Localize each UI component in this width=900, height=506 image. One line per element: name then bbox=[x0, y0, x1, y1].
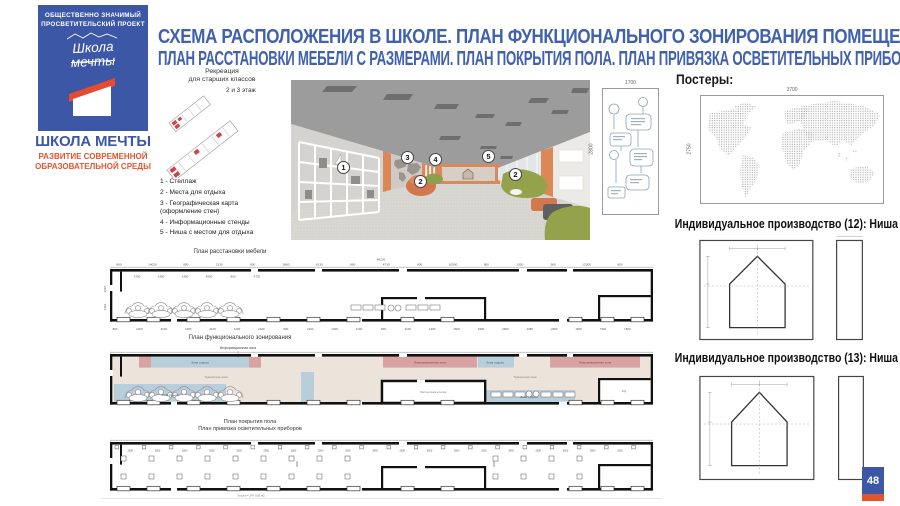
svg-text:2500: 2500 bbox=[345, 450, 351, 453]
svg-text:500: 500 bbox=[381, 327, 386, 331]
svg-text:1200: 1200 bbox=[234, 327, 241, 331]
brand-subtitle: РАЗВИТИЕ СОВРЕМЕННОЙ ОБРАЗОВАТЕЛЬНОЙ СРЕ… bbox=[28, 152, 158, 171]
svg-text:2500: 2500 bbox=[264, 450, 270, 453]
svg-text:7300: 7300 bbox=[600, 327, 607, 331]
svg-text:2050: 2050 bbox=[527, 327, 534, 331]
svg-text:2500: 2500 bbox=[209, 450, 215, 453]
svg-text:1500: 1500 bbox=[453, 327, 460, 331]
svg-text:2100: 2100 bbox=[307, 327, 314, 331]
svg-text:2100: 2100 bbox=[161, 327, 168, 331]
svg-text:Информационная зона: Информационная зона bbox=[220, 346, 256, 350]
svg-text:800: 800 bbox=[116, 262, 121, 266]
svg-text:2500: 2500 bbox=[236, 450, 242, 453]
svg-text:800: 800 bbox=[617, 262, 622, 266]
render-marker-2: 2 bbox=[414, 175, 427, 188]
svg-text:2100: 2100 bbox=[209, 327, 216, 331]
svg-text:2100: 2100 bbox=[405, 327, 412, 331]
plan-zoning: Информационная зонаЗона отдыхаИнформацио… bbox=[101, 342, 662, 422]
svg-text:1400: 1400 bbox=[158, 274, 165, 278]
brand-name: ШКОЛА МЕЧТЫ bbox=[28, 133, 158, 150]
render-marker-3: 3 bbox=[401, 151, 414, 164]
production13-heading: Индивидуальное производство (13): Ниша bbox=[648, 351, 898, 365]
logo-tagline: ОБЩЕСТВЕННО ЗНАЧИМЫЙ bbox=[38, 12, 148, 21]
svg-text:1000: 1000 bbox=[516, 262, 523, 266]
poster1-width-dim: 1700 bbox=[602, 80, 659, 86]
svg-text:12000: 12000 bbox=[582, 262, 591, 266]
svg-text:2500: 2500 bbox=[155, 450, 161, 453]
svg-text:800: 800 bbox=[350, 262, 355, 266]
svg-text:2500: 2500 bbox=[590, 450, 596, 453]
svg-text:Транзитная зона: Транзитная зона bbox=[513, 375, 537, 379]
svg-text:1200: 1200 bbox=[331, 327, 338, 331]
svg-text:1400: 1400 bbox=[182, 274, 189, 278]
svg-text:6130: 6130 bbox=[316, 262, 323, 266]
legend-item: 5 - Ниша с местом для отдыха bbox=[160, 229, 286, 237]
page-number-badge: 48 bbox=[862, 467, 884, 501]
svg-text:2600: 2600 bbox=[502, 327, 509, 331]
logo-block: ОБЩЕСТВЕННО ЗНАЧИМЫЙ ПРОСВЕТИТЕЛЬСКИЙ ПР… bbox=[38, 5, 148, 131]
school-house-icon bbox=[68, 74, 118, 118]
posters-heading: Постеры: bbox=[676, 72, 733, 87]
svg-text:4000: 4000 bbox=[206, 274, 213, 278]
svg-text:800: 800 bbox=[113, 327, 118, 331]
svg-text:2130: 2130 bbox=[216, 262, 223, 266]
plan-lighting: 2500250025002500250025002500250025002500… bbox=[101, 434, 662, 502]
page-title-line1: СХЕМА РАСПОЛОЖЕНИЯ В ШКОЛЕ. ПЛАН ФУНКЦИО… bbox=[158, 26, 789, 48]
svg-text:3700: 3700 bbox=[134, 274, 141, 278]
page-title-line2: ПЛАН РАССТАНОВКИ МЕБЕЛИ С РАЗМЕРАМИ. ПЛА… bbox=[158, 48, 648, 70]
svg-text:500: 500 bbox=[283, 327, 288, 331]
svg-text:900: 900 bbox=[551, 262, 556, 266]
world-map-poster bbox=[701, 96, 883, 203]
page-number: 48 bbox=[862, 467, 884, 494]
poster1-infographic bbox=[603, 89, 658, 214]
svg-text:4730: 4730 bbox=[383, 262, 390, 266]
svg-text:Информационная зона: Информационная зона bbox=[414, 361, 447, 365]
svg-text:4720: 4720 bbox=[254, 274, 261, 278]
svg-text:Зона отдыха: Зона отдыха bbox=[161, 393, 179, 397]
plan-flooring-title: План покрытия пола План привязка осветит… bbox=[140, 419, 360, 432]
svg-text:2300: 2300 bbox=[478, 327, 485, 331]
svg-text:Информационная зона: Информационная зона bbox=[579, 361, 612, 365]
mini-floorplan-thumbnails bbox=[155, 82, 287, 178]
poster2-frame bbox=[700, 95, 884, 204]
svg-text:2500: 2500 bbox=[318, 450, 324, 453]
svg-text:3310: 3310 bbox=[103, 303, 107, 310]
svg-text:1500: 1500 bbox=[575, 327, 582, 331]
svg-text:14020: 14020 bbox=[148, 262, 157, 266]
page-title: СХЕМА РАСПОЛОЖЕНИЯ В ШКОЛЕ. ПЛАН ФУНКЦИО… bbox=[158, 26, 900, 70]
svg-text:2100: 2100 bbox=[258, 327, 265, 331]
poster2-width-dim: 3700 bbox=[700, 87, 884, 93]
svg-text:2500: 2500 bbox=[536, 450, 542, 453]
svg-text:46230: 46230 bbox=[377, 257, 386, 261]
plan-furniture-title: План расстановки мебели bbox=[140, 249, 320, 255]
legend-item: 4 - Информационные стенды bbox=[160, 219, 286, 227]
svg-text:2500: 2500 bbox=[508, 450, 514, 453]
svg-text:2900: 2900 bbox=[551, 327, 558, 331]
svg-text:2500: 2500 bbox=[400, 450, 406, 453]
svg-text:2500: 2500 bbox=[481, 450, 487, 453]
render-marker-1: 1 bbox=[337, 161, 350, 174]
svg-text:Sпола = 247.026 м2: Sпола = 247.026 м2 bbox=[237, 494, 265, 498]
plan-zoning-title: План функционального зонирования bbox=[130, 335, 350, 341]
production12-drawing bbox=[692, 236, 900, 344]
svg-text:900: 900 bbox=[484, 262, 489, 266]
svg-text:800: 800 bbox=[183, 262, 188, 266]
plan-furniture: 4623080014020800213080018606130800473080… bbox=[101, 257, 662, 335]
svg-text:2500: 2500 bbox=[295, 461, 299, 467]
svg-text:2500: 2500 bbox=[617, 450, 623, 453]
svg-text:2100: 2100 bbox=[356, 327, 363, 331]
svg-text:800: 800 bbox=[230, 274, 235, 278]
render-marker-5: 5 bbox=[482, 150, 495, 163]
svg-text:2500: 2500 bbox=[427, 450, 433, 453]
svg-text:2500: 2500 bbox=[454, 450, 460, 453]
svg-text:1860: 1860 bbox=[283, 262, 290, 266]
svg-text:С/у: С/у bbox=[622, 389, 627, 393]
svg-text:800: 800 bbox=[250, 262, 255, 266]
svg-text:2500: 2500 bbox=[291, 450, 297, 453]
poster2-height-dim: 2750 bbox=[687, 143, 693, 154]
svg-text:Транзитная зона: Транзитная зона bbox=[204, 375, 228, 379]
svg-text:2500: 2500 bbox=[128, 450, 134, 453]
svg-text:1200: 1200 bbox=[136, 327, 143, 331]
svg-text:10500: 10500 bbox=[449, 262, 458, 266]
svg-text:1300: 1300 bbox=[185, 327, 192, 331]
svg-text:Зона отдыха: Зона отдыха bbox=[191, 361, 209, 365]
poster1-height-dim: 2800 bbox=[589, 143, 595, 154]
svg-text:Лестничная клетка: Лестничная клетка bbox=[420, 390, 447, 394]
svg-text:2500: 2500 bbox=[182, 450, 188, 453]
legend-item: 1 - Стеллаж bbox=[160, 178, 286, 186]
svg-text:Зона отдыха: Зона отдыха bbox=[520, 395, 538, 399]
legend-item: 2 - Места для отдыха bbox=[160, 189, 286, 197]
svg-text:2500: 2500 bbox=[563, 450, 569, 453]
poster1-frame bbox=[602, 88, 659, 215]
render-legend: 1 - Стеллаж 2 - Места для отдыха 3 - Гео… bbox=[160, 178, 286, 240]
svg-text:1500: 1500 bbox=[624, 327, 631, 331]
svg-text:3610: 3610 bbox=[103, 285, 107, 292]
interior-render-image: 1 2 3 4 5 2 bbox=[291, 80, 590, 240]
svg-text:1200: 1200 bbox=[429, 327, 436, 331]
svg-text:Зона отдыха: Зона отдыха bbox=[486, 361, 504, 365]
svg-text:800: 800 bbox=[417, 262, 422, 266]
svg-text:2500: 2500 bbox=[372, 450, 378, 453]
badge-accent-bar bbox=[862, 494, 884, 501]
render-marker-4: 4 bbox=[429, 153, 442, 166]
svg-text:2500: 2500 bbox=[492, 461, 496, 467]
production12-heading: Индивидуальное производство (12): Ниша bbox=[648, 217, 898, 231]
presentation-slide: ОБЩЕСТВЕННО ЗНАЧИМЫЙ ПРОСВЕТИТЕЛЬСКИЙ ПР… bbox=[0, 0, 900, 506]
legend-item: 3 - Географическая карта (оформление сте… bbox=[160, 200, 286, 216]
render-marker-2b: 2 bbox=[509, 168, 522, 181]
